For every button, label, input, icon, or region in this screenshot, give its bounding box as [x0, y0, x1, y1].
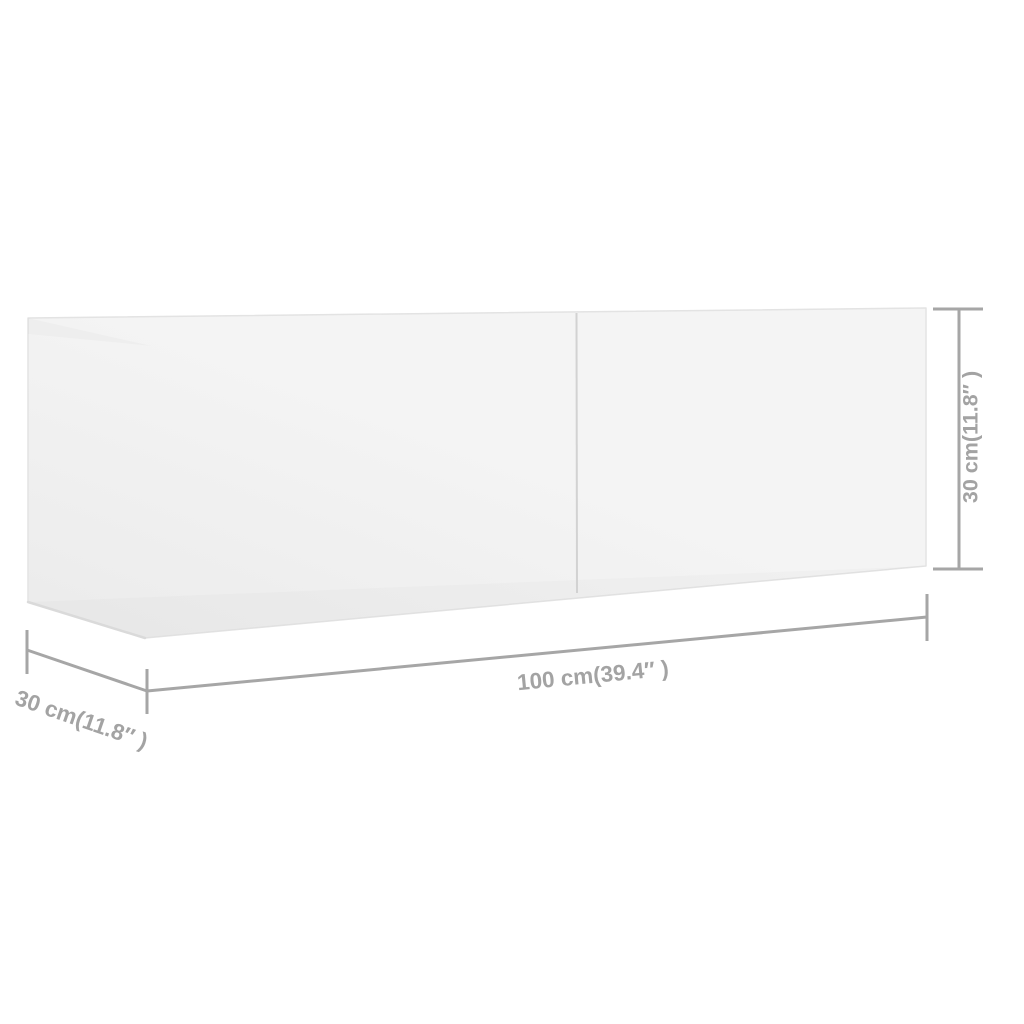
- depth-dimension-line: [27, 650, 147, 691]
- width-dimension-label: 100 cm(39.4″ ): [516, 656, 670, 695]
- cabinet: [28, 308, 926, 638]
- depth-dimension: 30 cm(11.8″ ): [12, 630, 151, 754]
- product-dimension-image: 30 cm(11.8″ ) 100 cm(39.4″ ) 30 cm(11.8″…: [0, 0, 1024, 1024]
- depth-dimension-label: 30 cm(11.8″ ): [12, 685, 151, 754]
- dimension-diagram-canvas: 30 cm(11.8″ ) 100 cm(39.4″ ) 30 cm(11.8″…: [0, 0, 1024, 1024]
- cabinet-door-divider-line: [577, 313, 578, 593]
- height-dimension-label: 30 cm(11.8″ ): [959, 371, 983, 503]
- height-dimension: 30 cm(11.8″ ): [933, 309, 983, 569]
